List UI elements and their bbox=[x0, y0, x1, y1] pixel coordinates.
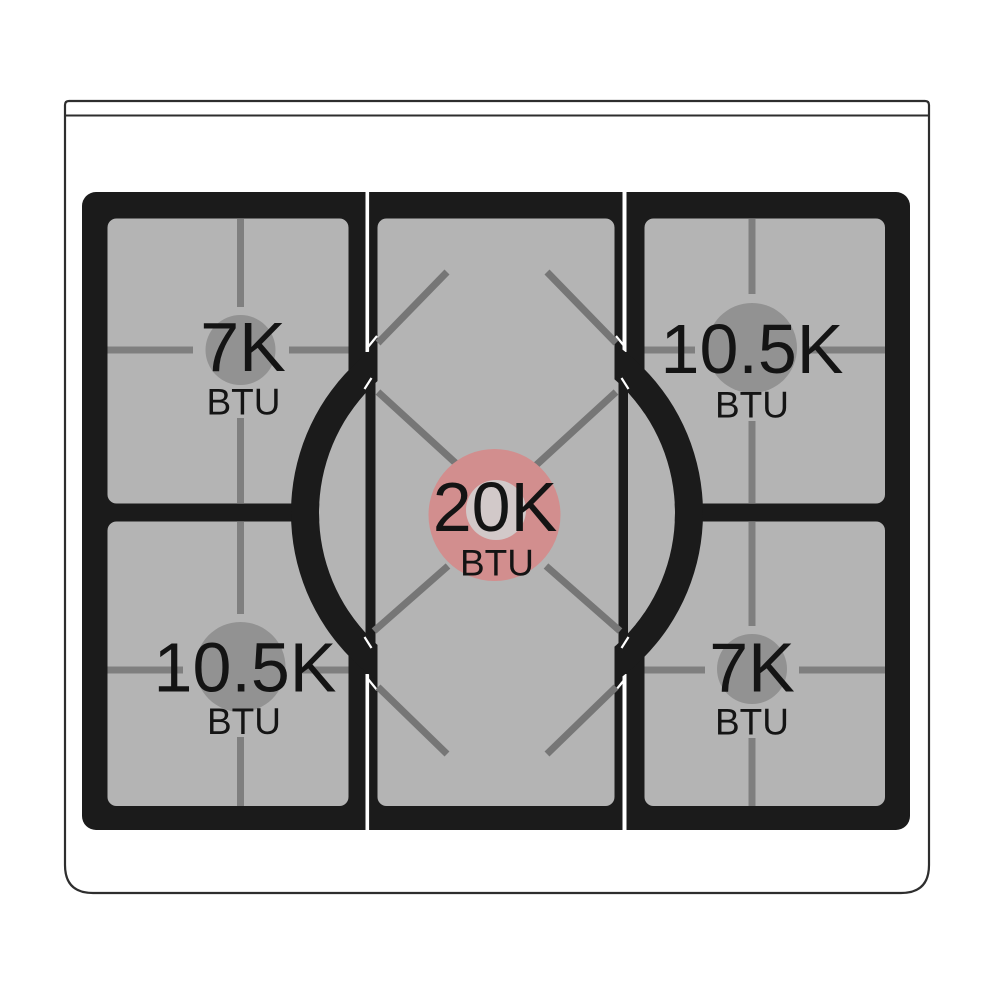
svg-text:10.5K: 10.5K bbox=[661, 310, 844, 388]
svg-text:BTU: BTU bbox=[715, 702, 789, 743]
svg-text:BTU: BTU bbox=[207, 701, 281, 742]
svg-text:7K: 7K bbox=[200, 308, 286, 386]
svg-text:20K: 20K bbox=[433, 468, 558, 546]
svg-text:7K: 7K bbox=[709, 629, 795, 707]
svg-text:BTU: BTU bbox=[460, 543, 534, 584]
svg-text:10.5K: 10.5K bbox=[154, 629, 337, 707]
svg-text:BTU: BTU bbox=[207, 382, 281, 423]
svg-text:BTU: BTU bbox=[715, 385, 789, 426]
